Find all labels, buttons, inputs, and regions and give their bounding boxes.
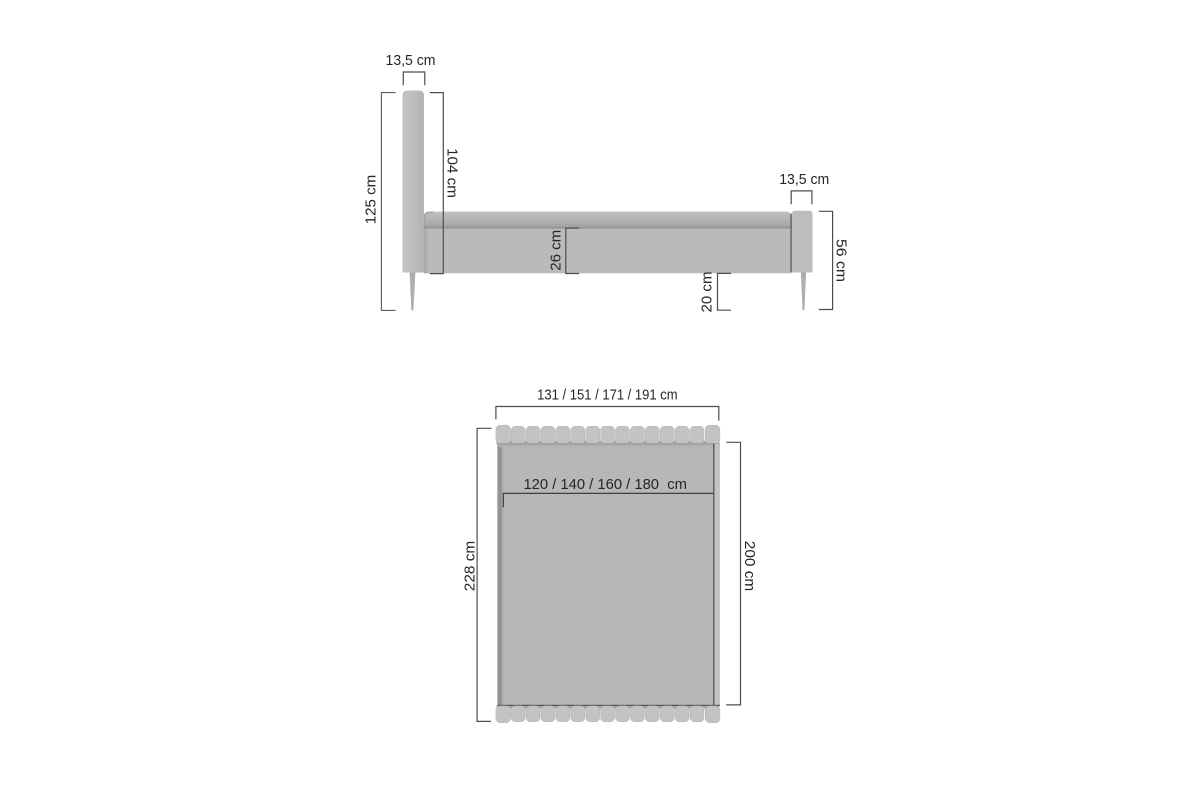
svg-text:104 cm: 104 cm xyxy=(444,148,461,198)
svg-text:228 cm: 228 cm xyxy=(461,541,478,592)
svg-text:56 cm: 56 cm xyxy=(833,239,850,282)
svg-text:26 cm: 26 cm xyxy=(548,230,565,271)
svg-text:125 cm: 125 cm xyxy=(362,175,379,225)
svg-text:200 cm: 200 cm xyxy=(741,541,758,592)
svg-text:20 cm: 20 cm xyxy=(699,272,716,313)
svg-text:120 / 140 / 160 / 180 cm: 120 / 140 / 160 / 180 cm xyxy=(523,476,687,493)
svg-text:131 / 151 / 171 / 191 cm: 131 / 151 / 171 / 191 cm xyxy=(537,388,678,404)
svg-text:13,5 cm: 13,5 cm xyxy=(779,172,829,188)
svg-text:13,5 cm: 13,5 cm xyxy=(386,53,436,69)
